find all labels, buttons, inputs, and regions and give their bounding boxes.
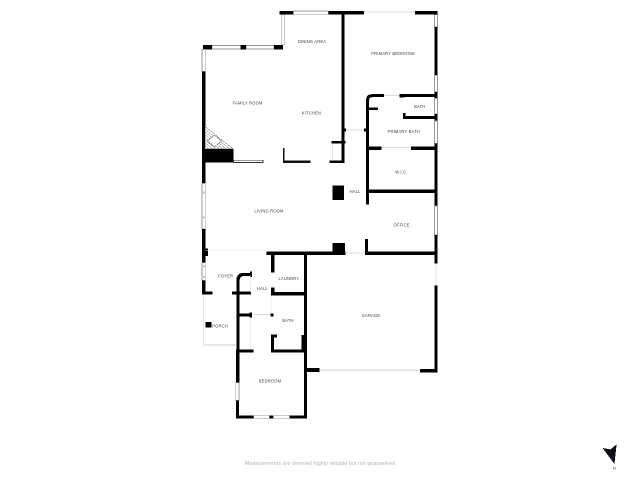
svg-text:FOYER: FOYER — [218, 274, 233, 279]
svg-text:GARAGE: GARAGE — [362, 313, 381, 318]
svg-text:DINING AREA: DINING AREA — [298, 39, 326, 44]
svg-text:BEDROOM: BEDROOM — [259, 378, 282, 383]
svg-text:W.I.C.: W.I.C. — [395, 169, 407, 174]
svg-text:HALL: HALL — [257, 286, 269, 291]
svg-text:BATH: BATH — [414, 104, 425, 109]
svg-text:BATH: BATH — [282, 318, 293, 323]
svg-text:PRIMARY BATH: PRIMARY BATH — [388, 129, 420, 134]
svg-text:LAUNDRY: LAUNDRY — [279, 276, 300, 281]
svg-text:KITCHEN: KITCHEN — [302, 110, 321, 115]
svg-text:LIVING ROOM: LIVING ROOM — [254, 208, 284, 213]
svg-text:Measurements are deemed highly: Measurements are deemed highly reliable … — [245, 461, 395, 467]
svg-text:FAMILY ROOM: FAMILY ROOM — [233, 100, 263, 105]
svg-text:PRIMARY BEDROOM: PRIMARY BEDROOM — [371, 51, 415, 56]
svg-text:PORCH: PORCH — [212, 323, 228, 328]
svg-text:N: N — [613, 467, 616, 471]
svg-text:HALL: HALL — [350, 189, 362, 194]
svg-text:OFFICE: OFFICE — [394, 222, 410, 227]
